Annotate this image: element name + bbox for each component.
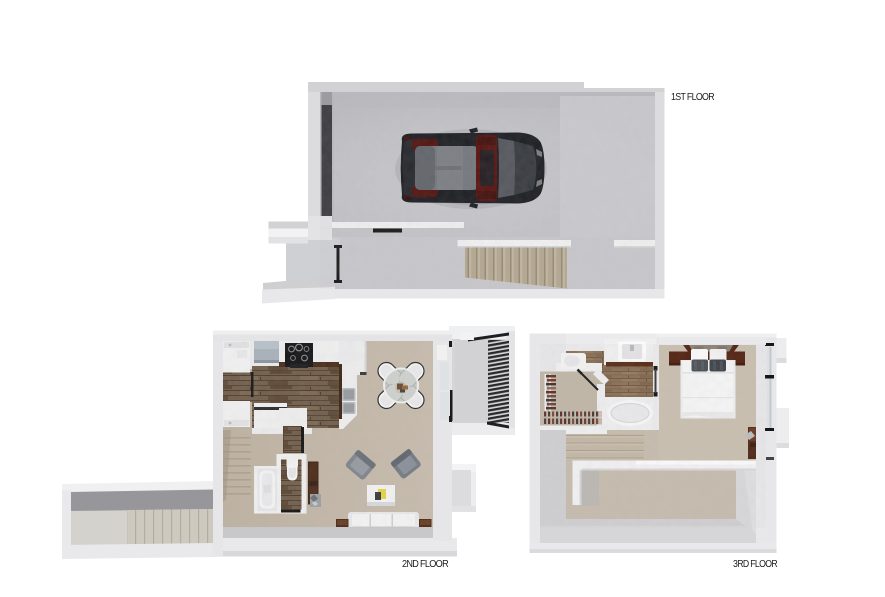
svg-text:2ND FLOOR: 2ND FLOOR: [402, 558, 449, 570]
svg-text:3RD FLOOR: 3RD FLOOR: [733, 558, 778, 570]
svg-text:1ST FLOOR: 1ST FLOOR: [671, 91, 715, 103]
